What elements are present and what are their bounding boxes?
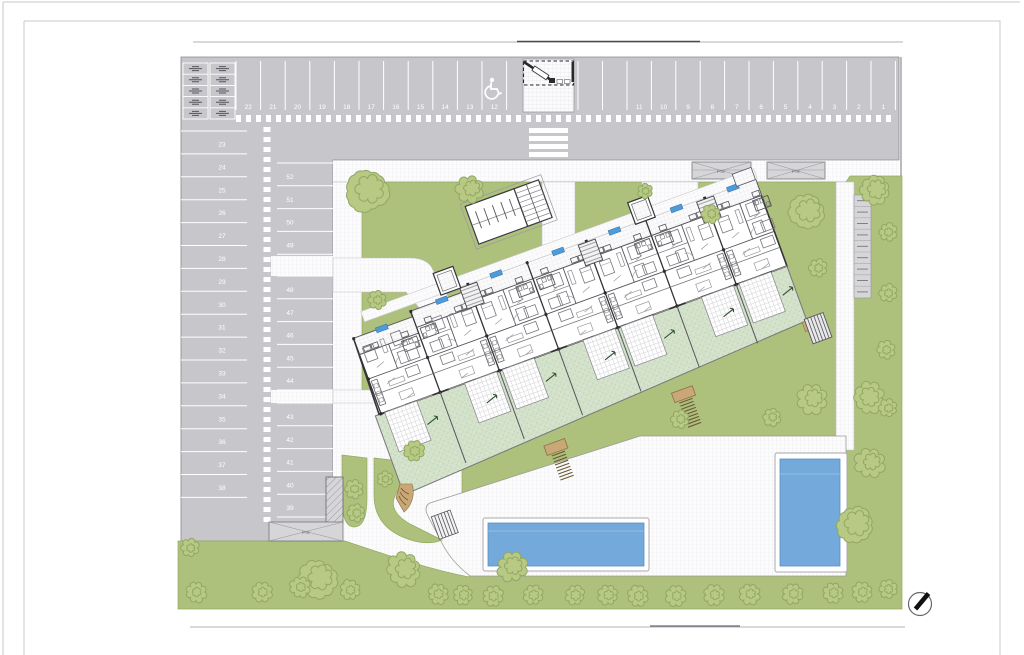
svg-text:25: 25 xyxy=(218,187,226,194)
svg-text:4: 4 xyxy=(808,104,812,111)
svg-text:51: 51 xyxy=(286,197,294,204)
svg-text:44: 44 xyxy=(286,378,294,385)
svg-text:50: 50 xyxy=(286,220,294,227)
svg-text:47: 47 xyxy=(286,310,294,317)
svg-text:3: 3 xyxy=(833,104,837,111)
svg-text:19: 19 xyxy=(318,104,326,111)
svg-text:2: 2 xyxy=(857,104,861,111)
svg-text:42: 42 xyxy=(286,437,294,444)
svg-text:PTE: PTE xyxy=(302,530,310,535)
svg-text:18: 18 xyxy=(343,104,351,111)
svg-text:24: 24 xyxy=(218,164,226,171)
svg-text:12: 12 xyxy=(491,104,499,111)
svg-text:40: 40 xyxy=(286,482,294,489)
svg-text:15: 15 xyxy=(417,104,425,111)
svg-text:21: 21 xyxy=(269,104,277,111)
svg-text:8: 8 xyxy=(711,104,715,111)
svg-text:5: 5 xyxy=(784,104,788,111)
svg-text:37: 37 xyxy=(218,462,226,469)
svg-text:20: 20 xyxy=(294,104,302,111)
svg-text:PTE: PTE xyxy=(792,169,800,174)
svg-text:29: 29 xyxy=(218,279,226,286)
svg-text:46: 46 xyxy=(286,333,294,340)
svg-text:9: 9 xyxy=(686,104,690,111)
svg-text:17: 17 xyxy=(368,104,376,111)
svg-text:27: 27 xyxy=(218,233,226,240)
svg-text:13: 13 xyxy=(466,104,474,111)
svg-text:32: 32 xyxy=(218,348,226,355)
svg-text:36: 36 xyxy=(218,439,226,446)
svg-text:33: 33 xyxy=(218,371,226,378)
svg-text:31: 31 xyxy=(218,325,226,332)
svg-text:52: 52 xyxy=(286,174,294,181)
svg-text:48: 48 xyxy=(286,287,294,294)
svg-text:39: 39 xyxy=(286,505,294,512)
svg-text:16: 16 xyxy=(392,104,400,111)
svg-text:7: 7 xyxy=(735,104,739,111)
svg-text:14: 14 xyxy=(441,104,449,111)
svg-text:22: 22 xyxy=(245,104,253,111)
svg-text:10: 10 xyxy=(660,104,668,111)
svg-text:43: 43 xyxy=(286,414,294,421)
svg-text:6: 6 xyxy=(759,104,763,111)
svg-text:41: 41 xyxy=(286,460,294,467)
svg-text:11: 11 xyxy=(636,104,643,111)
svg-text:38: 38 xyxy=(218,485,226,492)
svg-text:1: 1 xyxy=(881,104,885,111)
svg-text:35: 35 xyxy=(218,416,226,423)
svg-text:34: 34 xyxy=(218,393,226,400)
svg-text:23: 23 xyxy=(218,142,226,149)
svg-text:PTE: PTE xyxy=(717,169,725,174)
svg-text:26: 26 xyxy=(218,210,226,217)
svg-text:30: 30 xyxy=(218,302,226,309)
svg-text:49: 49 xyxy=(286,242,294,249)
svg-text:45: 45 xyxy=(286,355,294,362)
svg-text:28: 28 xyxy=(218,256,226,263)
